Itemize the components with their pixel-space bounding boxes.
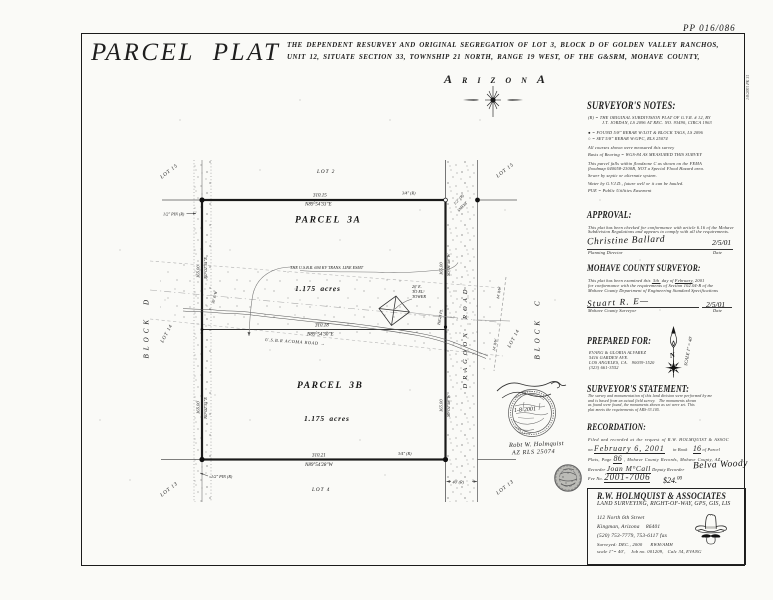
- svg-text:1.175 acres: 1.175 acres: [295, 284, 341, 293]
- svg-text:PARCEL 3B: PARCEL 3B: [297, 381, 363, 391]
- svg-text:LOT 15: LOT 15: [494, 162, 515, 180]
- svg-text:U.S.B.R ACOMA ROAD →: U.S.B.R ACOMA ROAD →: [265, 337, 326, 346]
- svg-text:LOT 4: LOT 4: [311, 486, 330, 493]
- svg-text:165.00: 165.00: [196, 265, 201, 278]
- svg-text:3/4" (R): 3/4" (R): [398, 451, 412, 456]
- svg-text:N89°54'30"E: N89°54'30"E: [306, 333, 334, 338]
- svg-text:3/4" (R): 3/4" (R): [402, 191, 416, 196]
- svg-text:N89°54'33"E: N89°54'33"E: [304, 203, 332, 208]
- svg-text:310.21: 310.21: [312, 454, 326, 459]
- svg-text:1.175 acres: 1.175 acres: [304, 414, 350, 423]
- svg-text:1/2" PIN (R): 1/2" PIN (R): [211, 474, 233, 479]
- svg-text:165.00: 165.00: [439, 399, 444, 412]
- svg-text:165.00: 165.00: [196, 401, 201, 414]
- svg-text:1/8/2001 PK 31: 1/8/2001 PK 31: [745, 75, 750, 100]
- svg-text:DRAGOON ROAD: DRAGOON ROAD: [462, 286, 469, 390]
- svg-text:N89°54'28"W: N89°54'28"W: [304, 463, 334, 468]
- svg-text:THE U.S.B.R. 694 KV TRANS. LIN: THE U.S.B.R. 694 KV TRANS. LINE ESMT: [290, 265, 364, 270]
- svg-text:310.18: 310.18: [315, 324, 329, 329]
- svg-text:LOT 13: LOT 13: [494, 479, 515, 497]
- svg-text:PARCEL 3A: PARCEL 3A: [295, 216, 361, 226]
- svg-text:LOT 13: LOT 13: [158, 481, 179, 499]
- svg-text:TOWER: TOWER: [412, 294, 426, 299]
- svg-text:S0°01'58"W: S0°01'58"W: [446, 393, 451, 417]
- svg-text:310.15: 310.15: [313, 194, 327, 199]
- svg-text:BLOCK D: BLOCK D: [143, 296, 151, 359]
- svg-text:SCALE 1" = 40': SCALE 1" = 40': [683, 335, 693, 366]
- svg-text:LOT 2: LOT 2: [316, 169, 335, 175]
- svg-text:N: N: [668, 351, 677, 360]
- svg-text:N0°02'35"E: N0°02'35"E: [203, 257, 208, 280]
- svg-text:AZ RLS 25074: AZ RLS 25074: [511, 448, 556, 457]
- svg-text:LOT 14: LOT 14: [160, 324, 174, 345]
- svg-text:1-8-2001: 1-8-2001: [514, 406, 536, 414]
- svg-text:40' (R): 40' (R): [453, 480, 465, 485]
- svg-text:S0°01'58"W: S0°01'58"W: [446, 252, 451, 276]
- svg-text:N0°02'35"E: N0°02'35"E: [203, 397, 208, 420]
- svg-text:165.00: 165.00: [439, 262, 444, 275]
- svg-text:BLOCK C: BLOCK C: [534, 297, 542, 359]
- svg-text:1/2" PIN (R): 1/2" PIN (R): [163, 212, 185, 217]
- svg-text:LOT 14: LOT 14: [507, 329, 521, 350]
- svg-text:LOT 15: LOT 15: [158, 163, 179, 181]
